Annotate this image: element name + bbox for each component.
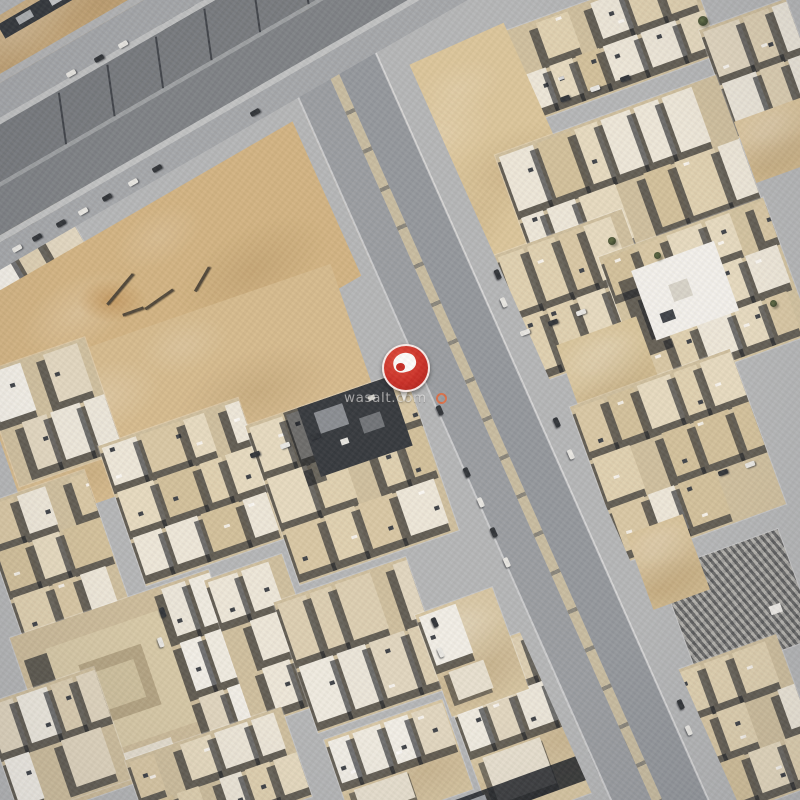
pin-logo-icon <box>391 351 418 375</box>
car <box>94 54 105 63</box>
car <box>567 449 575 460</box>
car <box>745 460 756 468</box>
car <box>436 405 444 416</box>
pin-circle <box>382 344 430 392</box>
car <box>78 207 89 216</box>
car <box>503 557 511 568</box>
car <box>685 725 693 736</box>
car <box>560 94 571 102</box>
satellite-map-canvas[interactable]: wasalt.com <box>0 0 800 800</box>
car <box>490 527 498 538</box>
car <box>56 219 67 228</box>
car <box>12 244 23 253</box>
car <box>620 74 631 82</box>
watermark-pin-icon <box>436 393 447 404</box>
pin-logo-dot <box>396 363 405 371</box>
location-pin-marker[interactable] <box>382 344 426 408</box>
car <box>102 193 113 202</box>
car <box>548 318 559 326</box>
car <box>431 617 439 628</box>
car <box>590 84 601 92</box>
car <box>310 432 321 440</box>
car <box>520 328 531 336</box>
car <box>463 467 471 478</box>
car <box>437 647 445 658</box>
car <box>159 607 167 618</box>
car <box>576 308 587 316</box>
car <box>280 441 291 449</box>
car <box>32 233 43 242</box>
car <box>500 297 508 308</box>
car <box>553 417 561 428</box>
car <box>718 468 729 476</box>
car <box>152 164 163 173</box>
car <box>250 450 261 458</box>
car <box>157 637 165 648</box>
car <box>118 40 129 49</box>
car <box>494 269 502 280</box>
car <box>477 497 485 508</box>
car <box>250 108 261 117</box>
car <box>677 699 685 710</box>
car <box>66 69 77 78</box>
car <box>128 178 139 187</box>
